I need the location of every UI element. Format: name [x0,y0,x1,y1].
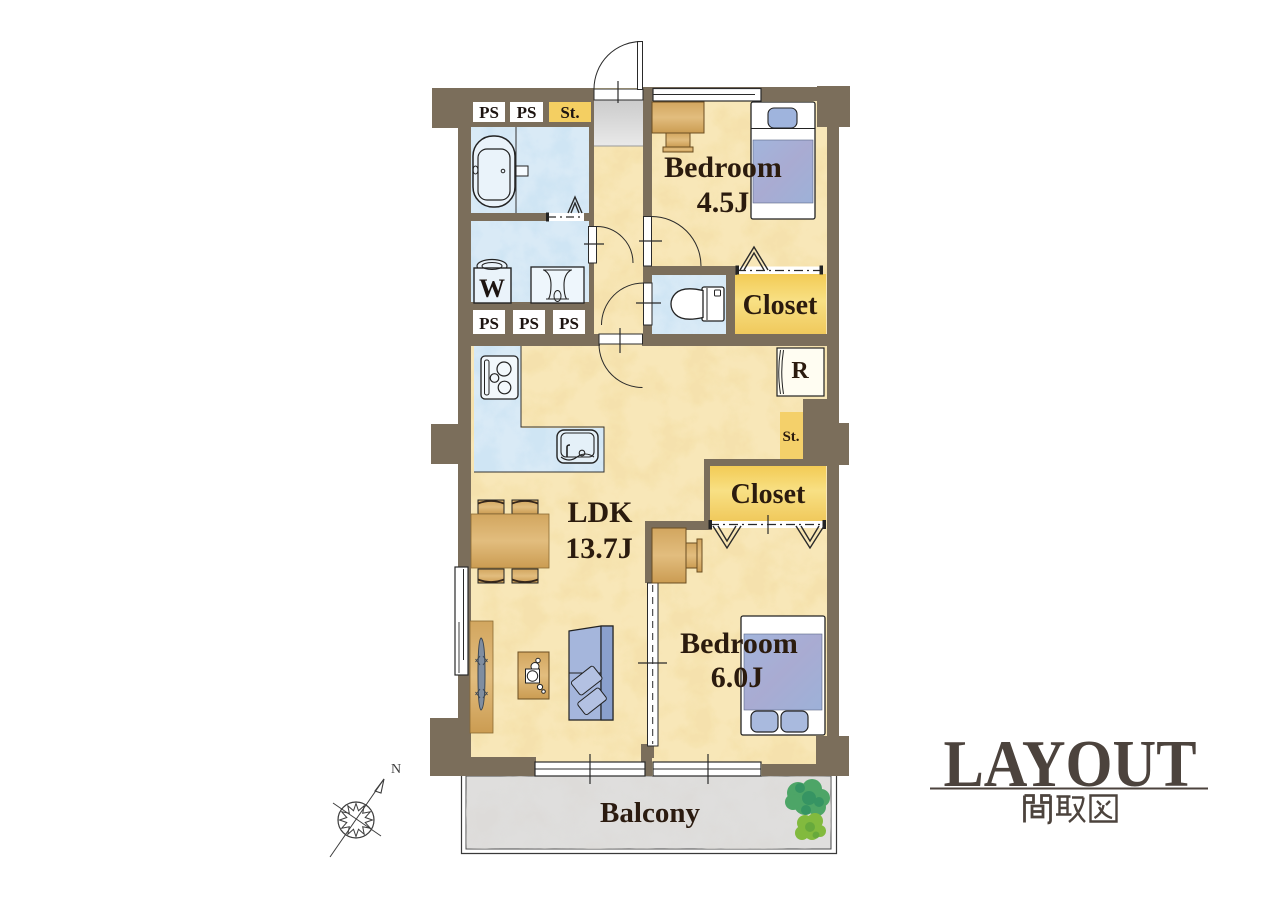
svg-text:Balcony: Balcony [600,797,700,829]
svg-text:Closet: Closet [731,479,806,510]
svg-text:PS: PS [479,314,499,333]
svg-text:St.: St. [782,429,799,445]
svg-text:Bedroom: Bedroom [664,151,782,184]
svg-text:Closet: Closet [743,290,818,321]
svg-text:W: W [479,274,505,303]
svg-text:N: N [391,762,401,777]
svg-text:R: R [791,358,809,384]
svg-text:St.: St. [560,103,579,122]
svg-text:4.5J: 4.5J [697,186,750,219]
svg-text:PS: PS [479,103,499,122]
svg-text:6.0J: 6.0J [711,661,764,694]
svg-text:PS: PS [517,103,537,122]
svg-text:LAYOUT: LAYOUT [944,727,1197,801]
svg-text:Bedroom: Bedroom [680,627,798,660]
svg-text:13.7J: 13.7J [565,532,633,565]
svg-text:PS: PS [559,314,579,333]
svg-text:LDK: LDK [567,496,633,529]
svg-text:PS: PS [519,314,539,333]
